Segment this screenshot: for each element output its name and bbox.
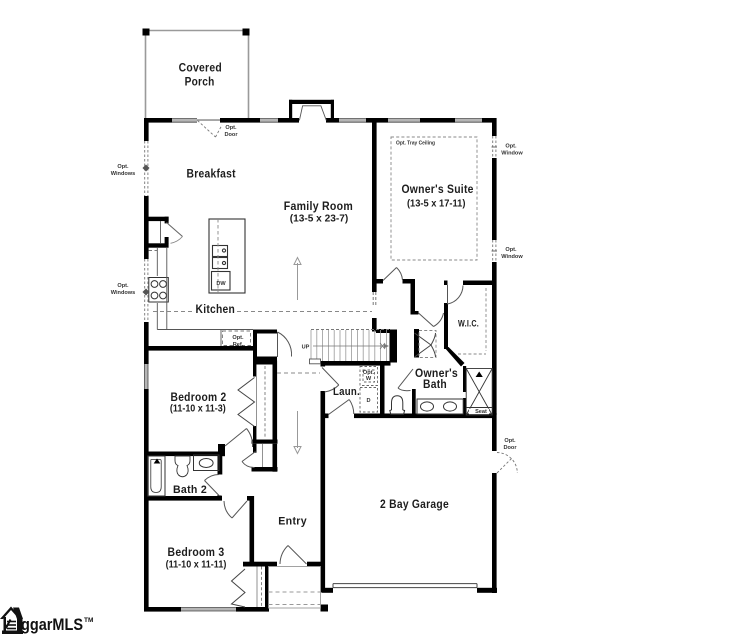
svg-text:ggarMLS: ggarMLS [21, 616, 83, 634]
svg-text:Laun.: Laun. [333, 386, 360, 398]
svg-text:Opt.: Opt. [504, 438, 516, 444]
svg-text:Opt.: Opt. [232, 335, 244, 341]
svg-text:Opt.: Opt. [117, 164, 129, 170]
svg-text:DW: DW [216, 281, 226, 287]
svg-text:Bath 2: Bath 2 [173, 484, 207, 496]
svg-text:Door: Door [503, 445, 517, 451]
svg-text:Bedroom 3: Bedroom 3 [168, 547, 225, 559]
svg-text:TM: TM [84, 617, 93, 624]
svg-text:D: D [366, 398, 370, 404]
svg-text:Ref.: Ref. [233, 342, 244, 348]
svg-text:Opt. Tray Ceiling: Opt. Tray Ceiling [396, 141, 435, 147]
svg-text:Owner's Suite: Owner's Suite [401, 184, 473, 196]
svg-text:Opt.: Opt. [225, 125, 237, 131]
svg-text:Kitchen: Kitchen [196, 304, 236, 316]
svg-text:(13-5 x 23-7): (13-5 x 23-7) [290, 213, 349, 225]
svg-text:UP: UP [302, 345, 310, 351]
svg-text:Window: Window [501, 254, 523, 260]
svg-text:W: W [366, 376, 372, 382]
svg-text:(11-10 x 11-3): (11-10 x 11-3) [170, 404, 226, 415]
svg-text:Window: Window [501, 151, 523, 157]
svg-text:Windows: Windows [111, 290, 136, 296]
svg-text:Porch: Porch [185, 77, 215, 89]
svg-text:2 Bay Garage: 2 Bay Garage [380, 499, 449, 511]
svg-text:Entry: Entry [278, 516, 307, 528]
svg-text:Bedroom 2: Bedroom 2 [171, 392, 227, 404]
svg-text:Family Room: Family Room [284, 201, 353, 213]
svg-text:Opt.: Opt. [117, 283, 129, 289]
svg-text:Opt.: Opt. [505, 144, 517, 150]
svg-text:(13-5 x 17-11): (13-5 x 17-11) [407, 198, 466, 210]
svg-text:Seat: Seat [475, 409, 487, 415]
svg-text:W.I.C.: W.I.C. [458, 319, 479, 330]
svg-text:Windows: Windows [111, 171, 136, 177]
svg-text:Breakfast: Breakfast [187, 168, 236, 180]
svg-text:(11-10 x 11-11): (11-10 x 11-11) [166, 560, 227, 571]
svg-text:Door: Door [224, 132, 238, 138]
svg-text:Opt.: Opt. [505, 247, 517, 253]
svg-text:Covered: Covered [179, 63, 222, 75]
svg-text:Bath: Bath [423, 379, 447, 391]
